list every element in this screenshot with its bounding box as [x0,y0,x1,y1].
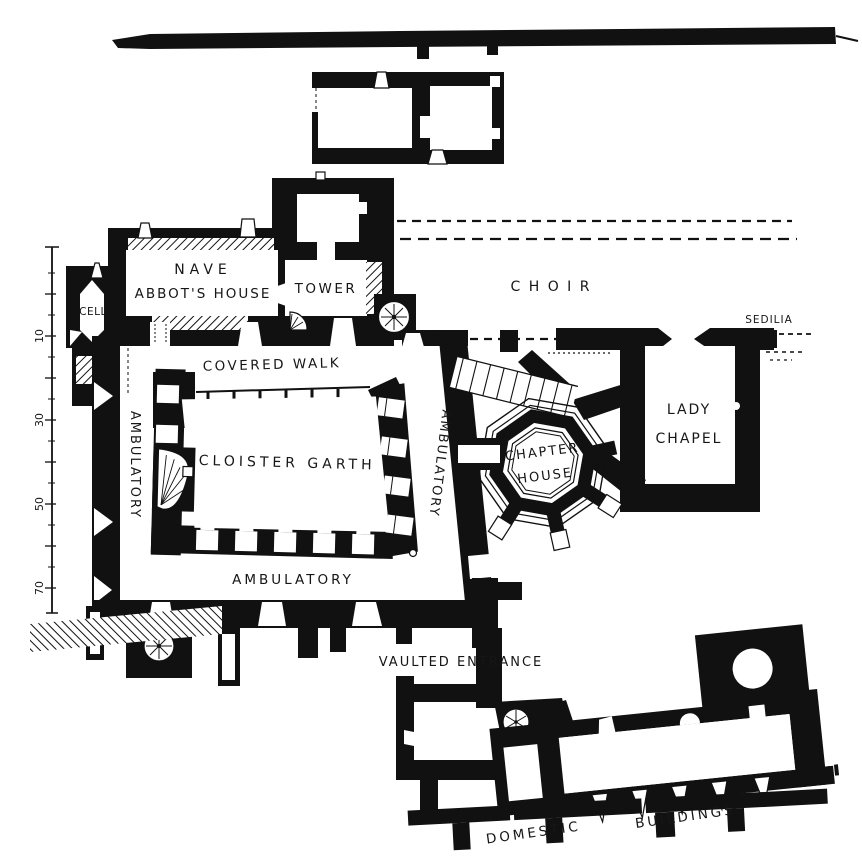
precinct-wall [112,27,858,59]
sacristy-room [297,194,359,242]
scale-tick-30: 30 [33,413,46,427]
abbey-ground-plan: CLOISTER GARTH [0,0,862,858]
cloister: CLOISTER GARTH [30,330,495,686]
cell-label: CELL [79,306,107,318]
nave-label: NAVE [174,262,232,278]
corner-marker [410,550,417,557]
domestic-label: DOMESTIC [485,818,582,847]
buttress [138,223,152,238]
ambulatory-west-label: AMBULATORY [127,411,142,519]
scale-bar: 10 30 50 70 [33,247,59,613]
nave-room [126,250,278,316]
scale-tick-10: 10 [33,329,46,343]
lady-chapel-label-1: LADY [667,402,711,418]
sedilia-label: SEDILIA [745,314,793,326]
abbots-house-label: ABBOT'S HOUSE [135,286,272,302]
buttress [240,219,256,237]
ambulatory-south-label: AMBULATORY [232,572,354,588]
plan-drawing: CLOISTER GARTH [0,0,862,858]
spiral-stair-icon [152,447,196,512]
scale-tick-70: 70 [33,581,46,595]
vaulted-entrance-label: VAULTED ENTRANCE [379,655,544,670]
scale-tick-50: 50 [33,497,46,511]
outbuilding [312,72,504,164]
lady-chapel-label-2: CHAPEL [656,431,723,447]
choir-label: C H O I R [511,279,592,295]
tower-label: TOWER [294,281,358,297]
